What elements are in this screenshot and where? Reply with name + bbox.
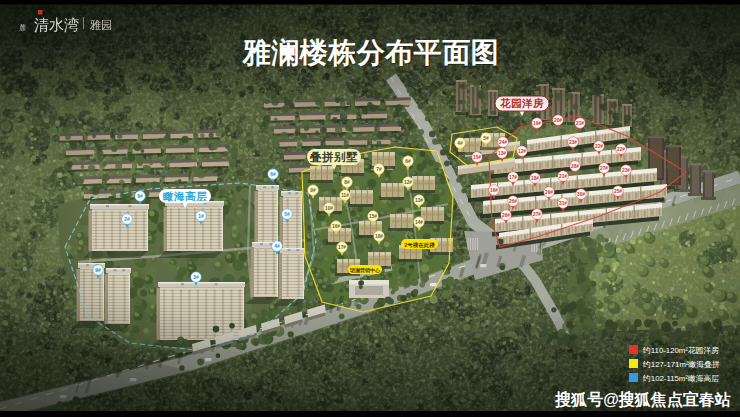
svg-text:约102-115m²瞰海高层: 约102-115m²瞰海高层	[642, 374, 719, 383]
svg-text:雅园: 雅园	[90, 19, 112, 31]
svg-text:清水湾: 清水湾	[34, 17, 79, 33]
svg-text:约127-171m²瞰海叠拼: 约127-171m²瞰海叠拼	[642, 360, 720, 369]
svg-text:麓: 麓	[19, 24, 26, 32]
svg-text:雅澜楼栋分布平面图: 雅澜楼栋分布平面图	[242, 37, 500, 68]
svg-text:搜狐号@搜狐焦点宜春站: 搜狐号@搜狐焦点宜春站	[554, 390, 731, 409]
svg-text:约110-120m²花园洋房: 约110-120m²花园洋房	[642, 346, 719, 355]
